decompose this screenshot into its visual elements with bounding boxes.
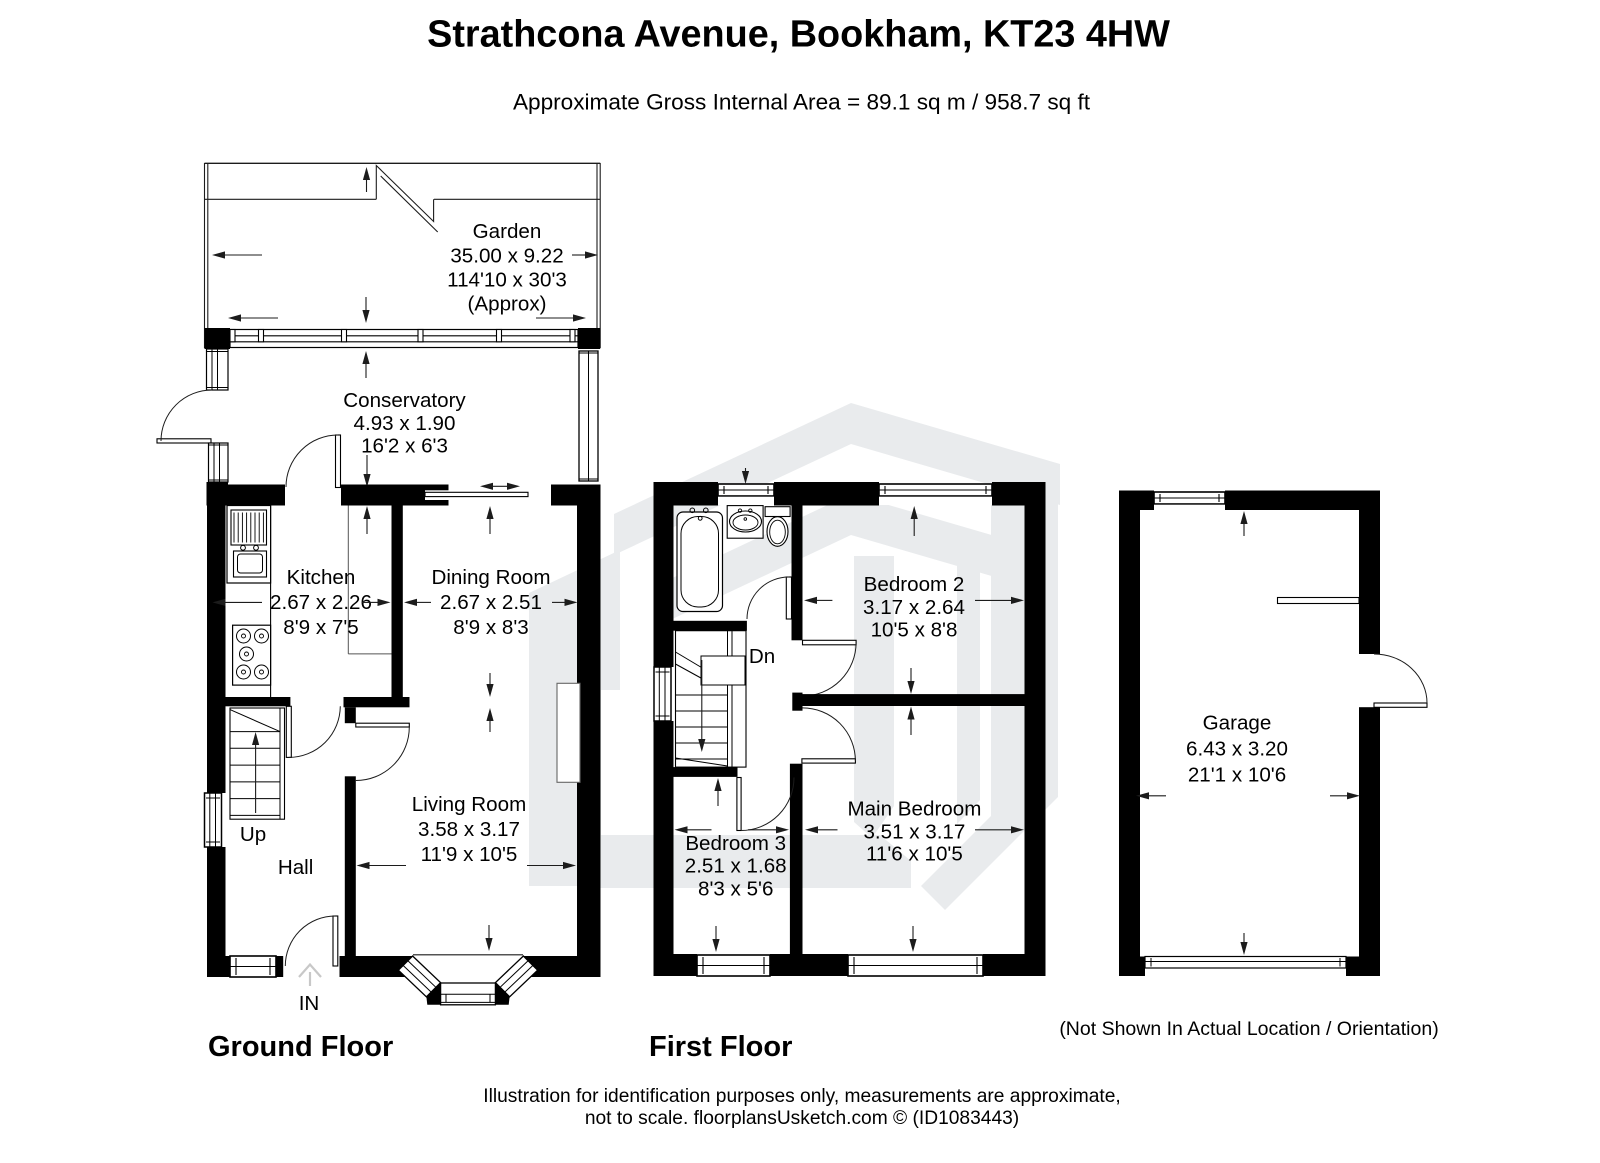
svg-text:Dining Room: Dining Room [431,566,550,589]
svg-text:11'9 x 10'5: 11'9 x 10'5 [421,843,518,866]
svg-text:Up: Up [240,823,266,846]
svg-text:(Not Shown In Actual Location: (Not Shown In Actual Location / Orientat… [1059,1018,1438,1040]
svg-text:First Floor: First Floor [649,1031,792,1063]
svg-text:3.51 x 3.17: 3.51 x 3.17 [863,820,965,843]
svg-text:114'10 x 30'3: 114'10 x 30'3 [447,269,567,292]
svg-text:11'6 x 10'5: 11'6 x 10'5 [866,843,963,866]
svg-text:4.93 x 1.90: 4.93 x 1.90 [354,412,456,435]
svg-text:Approximate Gross Internal Are: Approximate Gross Internal Area = 89.1 s… [513,89,1091,114]
svg-text:2.67 x 2.51: 2.67 x 2.51 [440,591,542,614]
svg-text:Bedroom 3: Bedroom 3 [685,832,786,855]
svg-text:Strathcona Avenue, Bookham, KT: Strathcona Avenue, Bookham, KT23 4HW [427,14,1170,56]
svg-text:8'9 x 7'5: 8'9 x 7'5 [283,616,358,639]
svg-text:Main Bedroom: Main Bedroom [847,798,981,821]
svg-text:not to scale. floorplansUsketc: not to scale. floorplansUsketch.com © (I… [585,1108,1019,1129]
svg-text:Illustration for identificatio: Illustration for identification purposes… [483,1086,1120,1107]
svg-text:IN: IN [299,992,320,1015]
svg-text:Dn: Dn [749,645,775,668]
svg-text:3.17 x 2.64: 3.17 x 2.64 [863,596,965,619]
svg-text:3.58 x 3.17: 3.58 x 3.17 [418,818,520,841]
svg-text:8'9 x 8'3: 8'9 x 8'3 [453,616,528,639]
svg-text:Garden: Garden [473,220,542,243]
svg-text:35.00 x 9.22: 35.00 x 9.22 [450,245,563,268]
svg-text:Living Room: Living Room [412,793,526,816]
svg-text:10'5 x 8'8: 10'5 x 8'8 [871,619,958,642]
svg-text:2.67 x 2.26: 2.67 x 2.26 [270,591,372,614]
svg-text:16'2 x 6'3: 16'2 x 6'3 [361,435,448,458]
svg-text:2.51 x 1.68: 2.51 x 1.68 [685,855,787,878]
svg-text:Bedroom 2: Bedroom 2 [864,573,965,596]
svg-text:Ground Floor: Ground Floor [208,1031,393,1063]
svg-text:Hall: Hall [278,856,313,879]
svg-text:(Approx): (Approx) [468,293,547,316]
svg-text:Conservatory: Conservatory [343,389,466,412]
svg-text:Kitchen: Kitchen [287,566,356,589]
svg-text:Garage: Garage [1203,712,1272,735]
svg-text:21'1 x 10'6: 21'1 x 10'6 [1188,764,1286,787]
svg-text:6.43 x 3.20: 6.43 x 3.20 [1186,738,1288,761]
svg-text:8'3 x 5'6: 8'3 x 5'6 [698,877,773,900]
